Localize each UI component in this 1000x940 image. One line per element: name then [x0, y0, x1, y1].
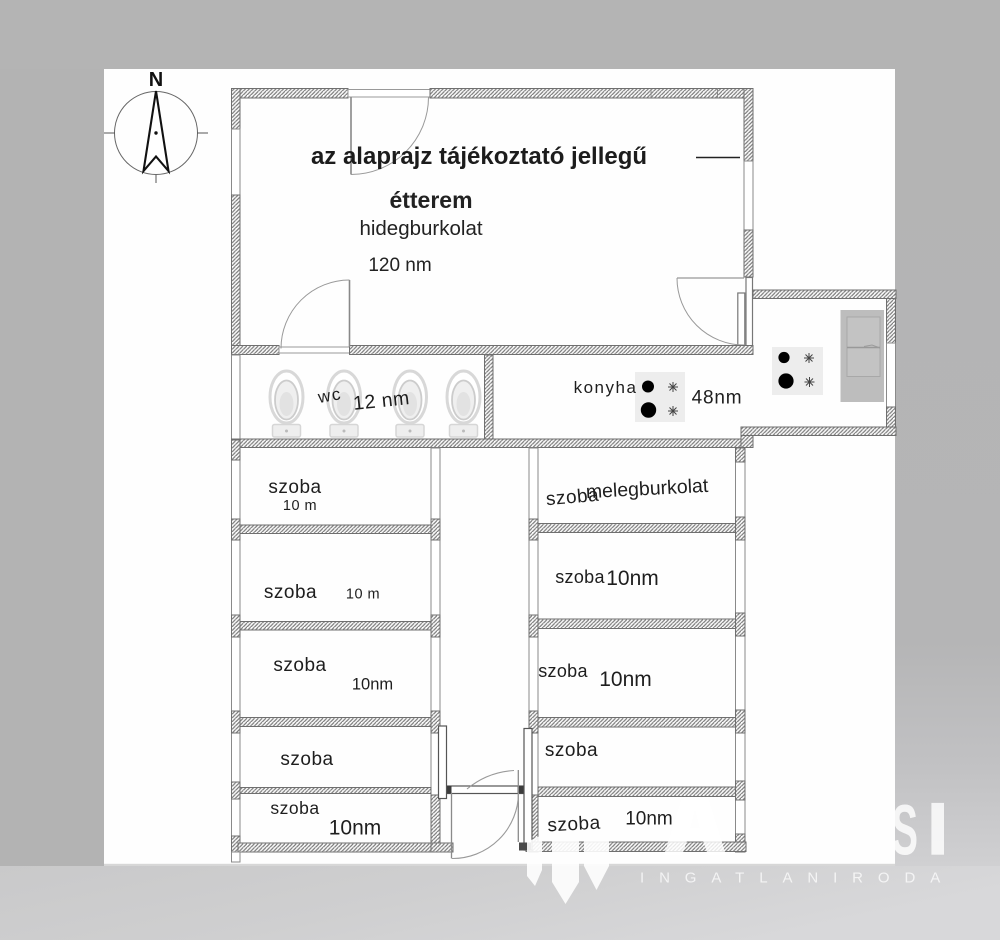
svg-text:10nm: 10nm	[599, 668, 652, 691]
svg-text:10nm: 10nm	[352, 676, 393, 694]
svg-text:N: N	[149, 69, 163, 91]
svg-text:INGATLANIRODA: INGATLANIRODA	[640, 870, 955, 887]
svg-text:szoba: szoba	[273, 655, 326, 676]
svg-text:szoba: szoba	[555, 567, 605, 587]
svg-text:48nm: 48nm	[692, 388, 743, 409]
svg-text:szoba: szoba	[545, 740, 598, 761]
svg-text:hidegburkolat: hidegburkolat	[359, 217, 482, 240]
svg-text:szoba: szoba	[280, 749, 333, 770]
svg-text:az alaprajz tájékoztató jelleg: az alaprajz tájékoztató jellegű	[311, 143, 647, 170]
svg-text:szoba: szoba	[538, 661, 588, 681]
svg-text:10nm: 10nm	[625, 809, 673, 830]
svg-text:120 nm: 120 nm	[368, 255, 431, 276]
svg-text:10 m: 10 m	[346, 587, 380, 603]
svg-text:szoba: szoba	[547, 813, 601, 837]
svg-text:S: S	[892, 792, 919, 871]
svg-text:szoba: szoba	[268, 477, 321, 498]
svg-text:10nm: 10nm	[329, 817, 382, 840]
svg-text:10nm: 10nm	[606, 567, 659, 590]
svg-text:konyha: konyha	[574, 378, 638, 397]
svg-text:szoba: szoba	[270, 798, 319, 818]
svg-text:szoba: szoba	[264, 582, 317, 603]
svg-text:étterem: étterem	[389, 187, 472, 213]
svg-text:10 m: 10 m	[283, 498, 317, 514]
